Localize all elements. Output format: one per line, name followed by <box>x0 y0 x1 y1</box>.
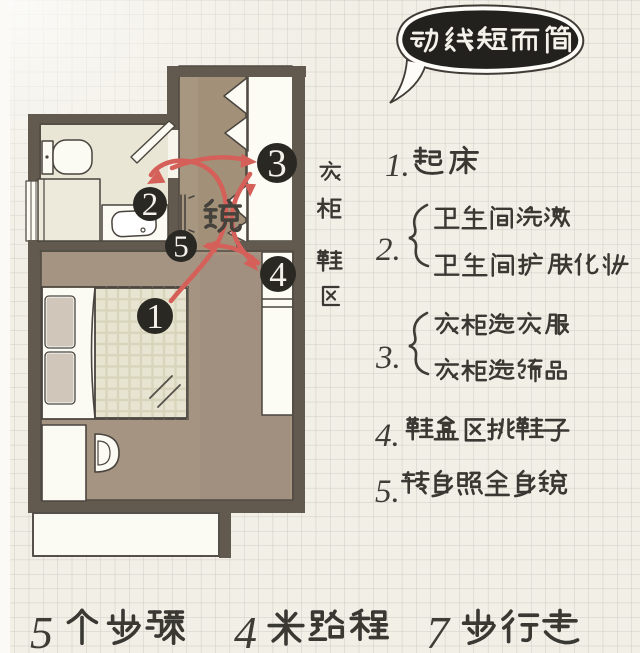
svg-text:5.: 5. <box>375 474 400 510</box>
svg-text:1: 1 <box>146 297 164 336</box>
svg-text:2.: 2. <box>376 232 401 268</box>
svg-text:7: 7 <box>426 607 451 653</box>
svg-text:5: 5 <box>30 607 53 653</box>
svg-text:4: 4 <box>234 607 257 653</box>
svg-text:2: 2 <box>142 187 159 223</box>
svg-text:4.: 4. <box>375 418 400 454</box>
svg-text:5: 5 <box>173 229 189 264</box>
svg-text:3: 3 <box>267 142 287 185</box>
svg-text:1.: 1. <box>385 148 410 184</box>
svg-text:4: 4 <box>269 255 287 294</box>
svg-text:3.: 3. <box>375 340 401 376</box>
